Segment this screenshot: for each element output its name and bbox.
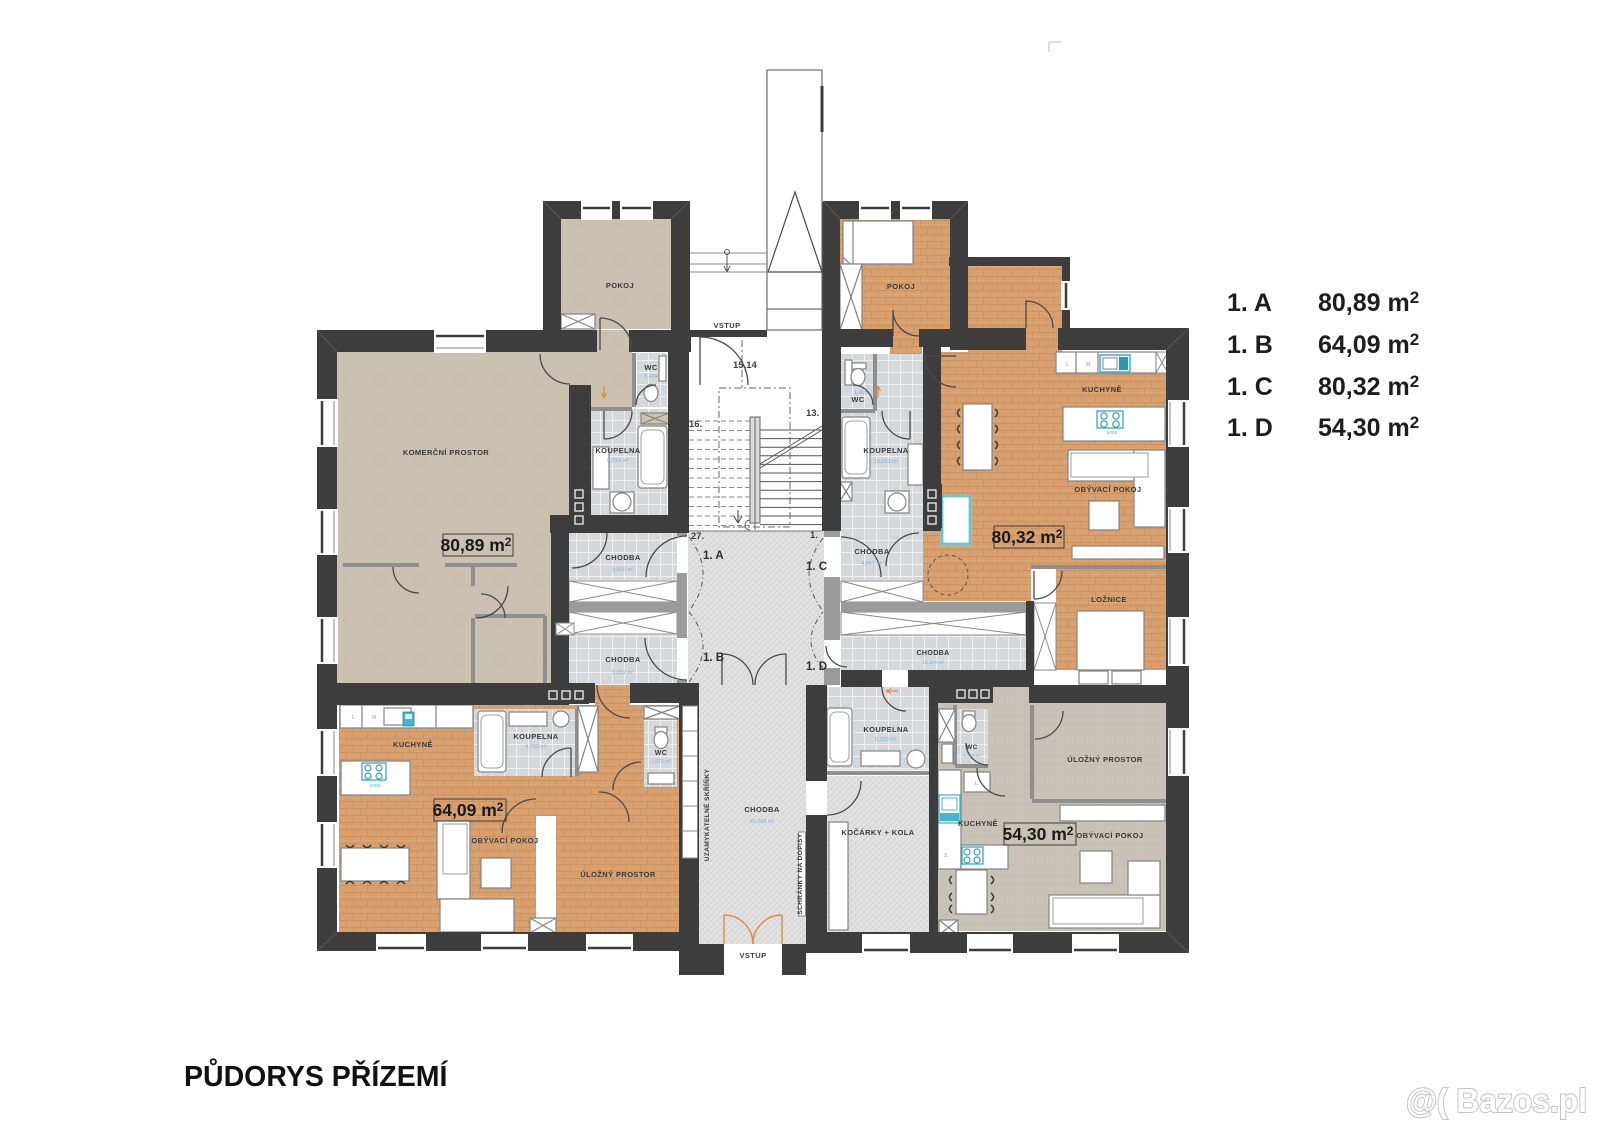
- svg-text:54,30 m2: 54,30 m2: [1318, 413, 1419, 442]
- svg-text:80,32 m2: 80,32 m2: [1318, 372, 1419, 401]
- svg-text:POKOJ: POKOJ: [887, 282, 915, 291]
- svg-text:1. D: 1. D: [806, 661, 827, 673]
- svg-text:1,404: 1,404: [644, 374, 658, 380]
- svg-text:L: L: [975, 781, 978, 787]
- svg-text:POKOJ: POKOJ: [606, 281, 634, 290]
- svg-text:80,32 m2: 80,32 m2: [992, 527, 1063, 547]
- svg-text:1. D: 1. D: [1227, 414, 1273, 442]
- svg-text:L: L: [352, 715, 355, 721]
- svg-text:UZAMYKATELNÉ SKŘÍŇKY: UZAMYKATELNÉ SKŘÍŇKY: [702, 769, 711, 862]
- svg-text:OBÝVACÍ POKOJ: OBÝVACÍ POKOJ: [471, 836, 538, 845]
- svg-text:4,702 m²: 4,702 m²: [525, 744, 547, 750]
- svg-text:LOŽNICE: LOŽNICE: [1091, 595, 1127, 604]
- svg-text:OBÝVACÍ POKOJ: OBÝVACÍ POKOJ: [1076, 831, 1143, 840]
- svg-text:CHODBA: CHODBA: [854, 547, 889, 556]
- svg-text:10,114 m²: 10,114 m²: [922, 660, 944, 666]
- svg-text:KOUPELNA: KOUPELNA: [595, 446, 640, 455]
- svg-text:1. A: 1. A: [1227, 289, 1272, 317]
- svg-text:55,068 m²: 55,068 m²: [750, 819, 775, 825]
- svg-text:15,14: 15,14: [733, 360, 757, 371]
- svg-text:M: M: [1086, 362, 1090, 368]
- svg-text:KOMERČNÍ PROSTOR: KOMERČNÍ PROSTOR: [403, 448, 489, 457]
- svg-text:KOUPELNA: KOUPELNA: [513, 732, 558, 741]
- svg-text:L: L: [1066, 362, 1069, 368]
- svg-text:1. C: 1. C: [806, 561, 827, 573]
- svg-text:WC: WC: [851, 395, 864, 404]
- svg-text:KUCHYNĚ: KUCHYNĚ: [393, 740, 433, 749]
- svg-text:80,89 m2: 80,89 m2: [441, 535, 512, 555]
- svg-text:ÚLOŽNÝ PROSTOR: ÚLOŽNÝ PROSTOR: [580, 870, 656, 879]
- svg-text:PŮDORYS PŘÍZEMÍ: PŮDORYS PŘÍZEMÍ: [184, 1059, 448, 1093]
- svg-text:16.: 16.: [689, 419, 702, 430]
- svg-text:1.: 1.: [810, 530, 818, 541]
- svg-text:1,575 m²: 1,575 m²: [651, 759, 671, 765]
- svg-text:VSTUP: VSTUP: [713, 321, 740, 330]
- svg-text:@( Bazos.pl: @( Bazos.pl: [1406, 1082, 1587, 1119]
- svg-text:5,856 m²: 5,856 m²: [612, 567, 634, 573]
- svg-text:54,30 m2: 54,30 m2: [1003, 824, 1074, 844]
- svg-text:10,693 m²: 10,693 m²: [874, 459, 899, 465]
- svg-text:KOUPELNA: KOUPELNA: [863, 446, 908, 455]
- svg-text:KOUPELNA: KOUPELNA: [863, 725, 908, 734]
- svg-text:64,09 m2: 64,09 m2: [1318, 330, 1419, 359]
- svg-text:CHODBA: CHODBA: [744, 805, 779, 814]
- svg-text:80,89 m2: 80,89 m2: [1318, 288, 1419, 317]
- svg-text:13.: 13.: [806, 408, 819, 419]
- svg-text:1. C: 1. C: [1227, 373, 1273, 401]
- svg-text:CHODBA: CHODBA: [605, 655, 640, 664]
- svg-text:M: M: [372, 715, 376, 721]
- svg-text:64,09 m2: 64,09 m2: [433, 800, 504, 820]
- svg-text:1. A: 1. A: [703, 550, 724, 562]
- svg-text:ÚLOŽNÝ PROSTOR: ÚLOŽNÝ PROSTOR: [1067, 755, 1143, 764]
- svg-text:600S: 600S: [1107, 430, 1118, 435]
- svg-text:SCHRÁNKY NA DOPISY: SCHRÁNKY NA DOPISY: [795, 833, 804, 915]
- svg-text:CHODBA: CHODBA: [605, 553, 640, 562]
- svg-text:CHODBA: CHODBA: [916, 650, 949, 657]
- svg-text:6,014 m²: 6,014 m²: [607, 458, 629, 464]
- svg-text:5,930 m²: 5,930 m²: [875, 737, 897, 743]
- svg-text:OBÝVACÍ POKOJ: OBÝVACÍ POKOJ: [1074, 485, 1141, 494]
- svg-text:27.: 27.: [691, 531, 704, 542]
- svg-text:1. B: 1. B: [1227, 331, 1273, 359]
- svg-text:1,778 m²: 1,778 m²: [963, 753, 981, 758]
- svg-text:4,867 m²: 4,867 m²: [861, 561, 883, 567]
- svg-text:600S: 600S: [370, 783, 381, 788]
- svg-text:VSTUP: VSTUP: [739, 951, 766, 960]
- svg-text:1. B: 1. B: [703, 652, 724, 664]
- svg-text:WC: WC: [644, 363, 657, 372]
- svg-text:KOČÁRKY + KOLA: KOČÁRKY + KOLA: [841, 828, 914, 837]
- svg-text:KUCHYNĚ: KUCHYNĚ: [958, 819, 998, 828]
- svg-text:WC: WC: [966, 744, 978, 751]
- svg-text:KUCHYNĚ: KUCHYNĚ: [1082, 385, 1122, 394]
- svg-text:5,892 m²: 5,892 m²: [612, 670, 634, 676]
- svg-text:WC: WC: [655, 750, 667, 757]
